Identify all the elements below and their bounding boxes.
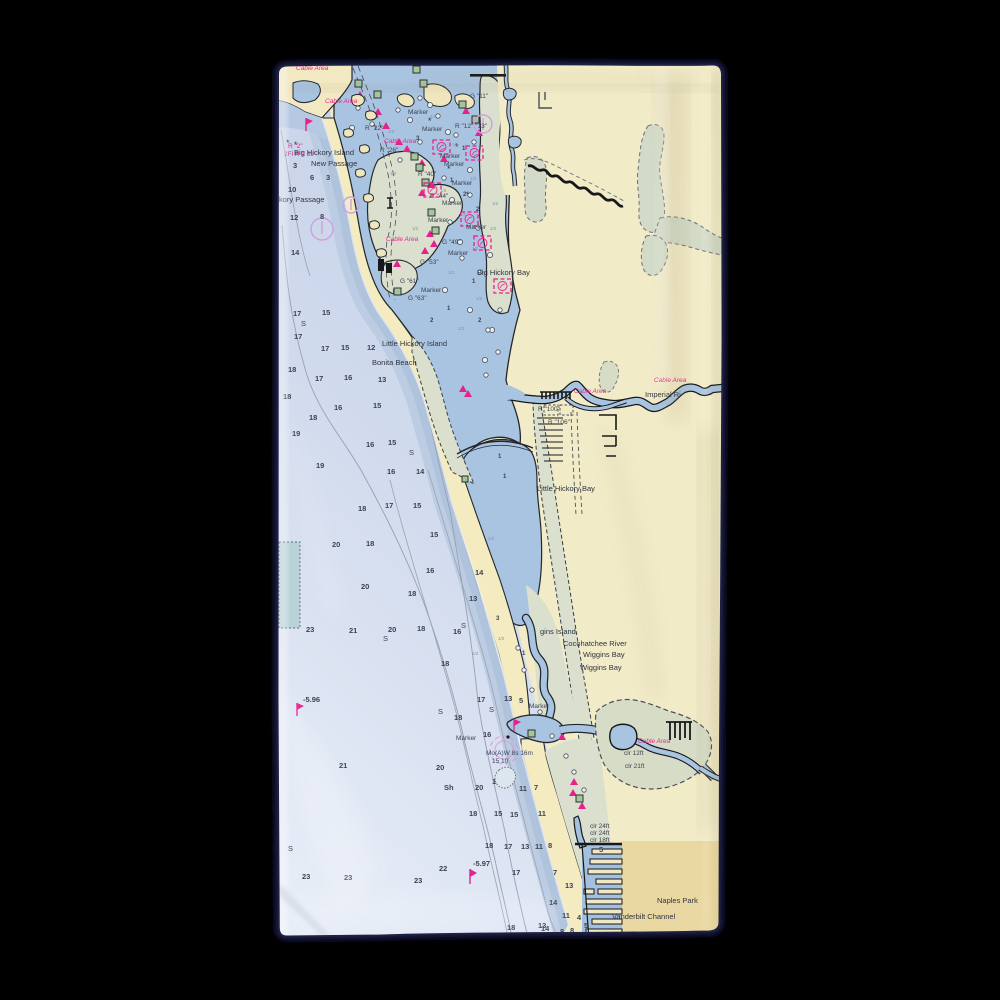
svg-text:clr 24ft: clr 24ft	[590, 823, 610, 830]
svg-text:1/2: 1/2	[488, 536, 495, 541]
svg-text:20: 20	[436, 763, 444, 772]
svg-text:1/2: 1/2	[452, 142, 459, 147]
svg-text:5: 5	[599, 845, 603, 854]
svg-text:Wiggins Bay: Wiggins Bay	[580, 663, 622, 672]
svg-text:1/2: 1/2	[458, 326, 465, 331]
svg-text:11: 11	[538, 809, 546, 818]
svg-text:-5.96: -5.96	[303, 695, 320, 704]
svg-text:clr 21ft: clr 21ft	[625, 763, 645, 770]
svg-text:R "100": R "100"	[538, 406, 561, 413]
svg-text:S: S	[301, 319, 306, 328]
svg-text:Marker: Marker	[440, 153, 461, 160]
svg-text:1/2: 1/2	[460, 212, 467, 217]
svg-text:S: S	[409, 448, 414, 457]
svg-text:1/2: 1/2	[490, 226, 497, 231]
svg-text:18: 18	[485, 841, 493, 850]
svg-text:16: 16	[366, 440, 374, 449]
svg-text:R "106": R "106"	[548, 419, 571, 426]
svg-text:1/2: 1/2	[492, 201, 499, 206]
svg-text:15: 15	[373, 401, 381, 410]
svg-text:R "26": R "26"	[380, 147, 399, 154]
svg-text:17: 17	[315, 374, 323, 383]
svg-text:3: 3	[293, 161, 297, 170]
svg-text:5: 5	[584, 921, 588, 930]
svg-text:16: 16	[334, 403, 342, 412]
svg-text:3: 3	[326, 173, 330, 182]
svg-text:18: 18	[309, 413, 317, 422]
svg-text:18: 18	[454, 713, 462, 722]
svg-text:R "44": R "44"	[430, 193, 449, 200]
svg-text:Cable Area: Cable Area	[325, 98, 358, 105]
svg-text:R "22": R "22"	[365, 125, 384, 132]
svg-text:Marker: Marker	[456, 735, 477, 742]
svg-text:18: 18	[366, 539, 374, 548]
svg-text:Marker: Marker	[452, 180, 473, 187]
svg-text:Marker: Marker	[466, 224, 487, 231]
svg-text:Marker: Marker	[442, 200, 463, 207]
svg-text:R "12" "13": R "12" "13"	[455, 123, 488, 130]
svg-text:clr 24ft: clr 24ft	[590, 830, 610, 837]
svg-text:14: 14	[291, 248, 300, 257]
svg-text:17: 17	[321, 344, 329, 353]
svg-text:Wiggins Bay: Wiggins Bay	[583, 650, 625, 659]
svg-text:Marker: Marker	[448, 250, 469, 257]
svg-text:Cable Area: Cable Area	[574, 388, 607, 395]
svg-text:15: 15	[430, 530, 438, 539]
svg-text:Cable Area: Cable Area	[386, 236, 419, 243]
svg-text:G "11": G "11"	[470, 93, 489, 100]
svg-text:S: S	[489, 705, 494, 714]
svg-text:5: 5	[519, 696, 523, 705]
svg-text:Bonita Beach: Bonita Beach	[372, 358, 417, 367]
svg-text:1/2: 1/2	[476, 296, 483, 301]
svg-text:7: 7	[534, 783, 538, 792]
svg-text:11: 11	[535, 842, 543, 851]
svg-text:1/2: 1/2	[390, 171, 397, 176]
svg-text:G "61": G "61"	[400, 278, 419, 285]
svg-text:Cocohatchee River: Cocohatchee River	[563, 639, 627, 648]
svg-text:1/2: 1/2	[412, 226, 419, 231]
svg-text:15: 15	[510, 810, 518, 819]
svg-text:16: 16	[344, 373, 352, 382]
svg-text:8: 8	[548, 841, 552, 850]
svg-text:gins Island: gins Island	[540, 627, 576, 636]
svg-text:23: 23	[414, 876, 422, 885]
svg-text:Marker: Marker	[444, 161, 465, 168]
svg-text:15: 15	[413, 501, 421, 510]
svg-text:S: S	[288, 844, 293, 853]
svg-text:G "63": G "63"	[408, 295, 427, 302]
svg-text:R "40": R "40"	[418, 171, 437, 178]
svg-text:15: 15	[494, 809, 502, 818]
svg-text:20: 20	[388, 625, 396, 634]
svg-text:1/2: 1/2	[388, 129, 395, 134]
svg-text:13: 13	[378, 375, 386, 384]
svg-text:11: 11	[562, 911, 570, 920]
svg-text:Sh: Sh	[444, 783, 454, 792]
svg-text:23: 23	[306, 625, 314, 634]
svg-text:16: 16	[387, 467, 395, 476]
svg-text:20: 20	[361, 582, 369, 591]
svg-text:1/2: 1/2	[472, 651, 479, 656]
svg-text:1/2: 1/2	[498, 636, 505, 641]
svg-text:21: 21	[349, 626, 357, 635]
svg-text:6: 6	[310, 173, 314, 182]
svg-text:18: 18	[469, 809, 477, 818]
svg-text:Little Hickory Bay: Little Hickory Bay	[537, 484, 595, 493]
svg-text:Little Hickory Island: Little Hickory Island	[382, 339, 447, 348]
svg-text:Naples Park: Naples Park	[657, 896, 698, 905]
svg-text:2Fl R 2 5s: 2Fl R 2 5s	[284, 151, 314, 158]
svg-text:Marker: Marker	[529, 703, 550, 710]
svg-text:S: S	[383, 634, 388, 643]
svg-text:12: 12	[367, 343, 375, 352]
svg-text:Cable Area: Cable Area	[638, 738, 671, 745]
svg-text:Vanderbilt Channel: Vanderbilt Channel	[612, 912, 676, 921]
svg-text:18: 18	[441, 659, 449, 668]
svg-text:Mo(A)W 8s 16m: Mo(A)W 8s 16m	[486, 750, 533, 757]
svg-text:23: 23	[302, 872, 310, 881]
svg-text:13: 13	[565, 881, 573, 890]
svg-text:17: 17	[293, 309, 301, 318]
svg-text:S: S	[461, 621, 466, 630]
svg-text:17: 17	[477, 695, 485, 704]
svg-text:Big Hickory Bay: Big Hickory Bay	[477, 268, 530, 277]
svg-text:13: 13	[521, 842, 529, 851]
svg-text:15: 15	[341, 343, 349, 352]
svg-text:20: 20	[332, 540, 340, 549]
svg-text:8: 8	[320, 212, 324, 221]
svg-text:clr 12ft: clr 12ft	[624, 750, 644, 757]
svg-text:18: 18	[288, 365, 296, 374]
svg-text:clr 18ft: clr 18ft	[590, 837, 610, 844]
svg-text:18: 18	[408, 589, 416, 598]
svg-text:16: 16	[426, 566, 434, 575]
svg-text:21: 21	[339, 761, 347, 770]
svg-text:11: 11	[519, 784, 527, 793]
svg-text:18: 18	[358, 504, 366, 513]
svg-text:Cable Area: Cable Area	[384, 138, 417, 145]
svg-text:15: 15	[322, 308, 330, 317]
svg-text:13: 13	[504, 694, 512, 703]
svg-text:Marker: Marker	[421, 287, 442, 294]
svg-text:10: 10	[288, 185, 296, 194]
svg-text:G "53": G "53"	[420, 259, 439, 266]
svg-text:1/2: 1/2	[448, 270, 455, 275]
svg-text:17: 17	[512, 868, 520, 877]
svg-text:17: 17	[385, 501, 393, 510]
svg-text:18: 18	[417, 624, 425, 633]
svg-text:Marker: Marker	[428, 217, 449, 224]
svg-text:12: 12	[290, 213, 298, 222]
svg-text:Marker: Marker	[408, 109, 429, 116]
svg-text:13: 13	[469, 594, 477, 603]
svg-text:15: 15	[388, 438, 396, 447]
svg-text:19: 19	[316, 461, 324, 470]
svg-text:R "2": R "2"	[288, 143, 303, 150]
svg-text:15 10: 15 10	[492, 758, 509, 765]
svg-text:New Passage: New Passage	[311, 159, 357, 168]
svg-text:S: S	[438, 707, 443, 716]
svg-text:14: 14	[416, 467, 425, 476]
svg-text:14: 14	[475, 568, 484, 577]
svg-text:G "49": G "49"	[442, 239, 461, 246]
svg-text:16: 16	[483, 730, 491, 739]
svg-text:17: 17	[294, 332, 302, 341]
svg-text:20: 20	[475, 783, 483, 792]
svg-text:Marker: Marker	[422, 126, 443, 133]
svg-text:-5.97: -5.97	[473, 859, 490, 868]
svg-text:17: 17	[504, 842, 512, 851]
svg-text:22: 22	[439, 864, 447, 873]
svg-text:7: 7	[553, 868, 557, 877]
svg-text:1/2: 1/2	[472, 246, 479, 251]
